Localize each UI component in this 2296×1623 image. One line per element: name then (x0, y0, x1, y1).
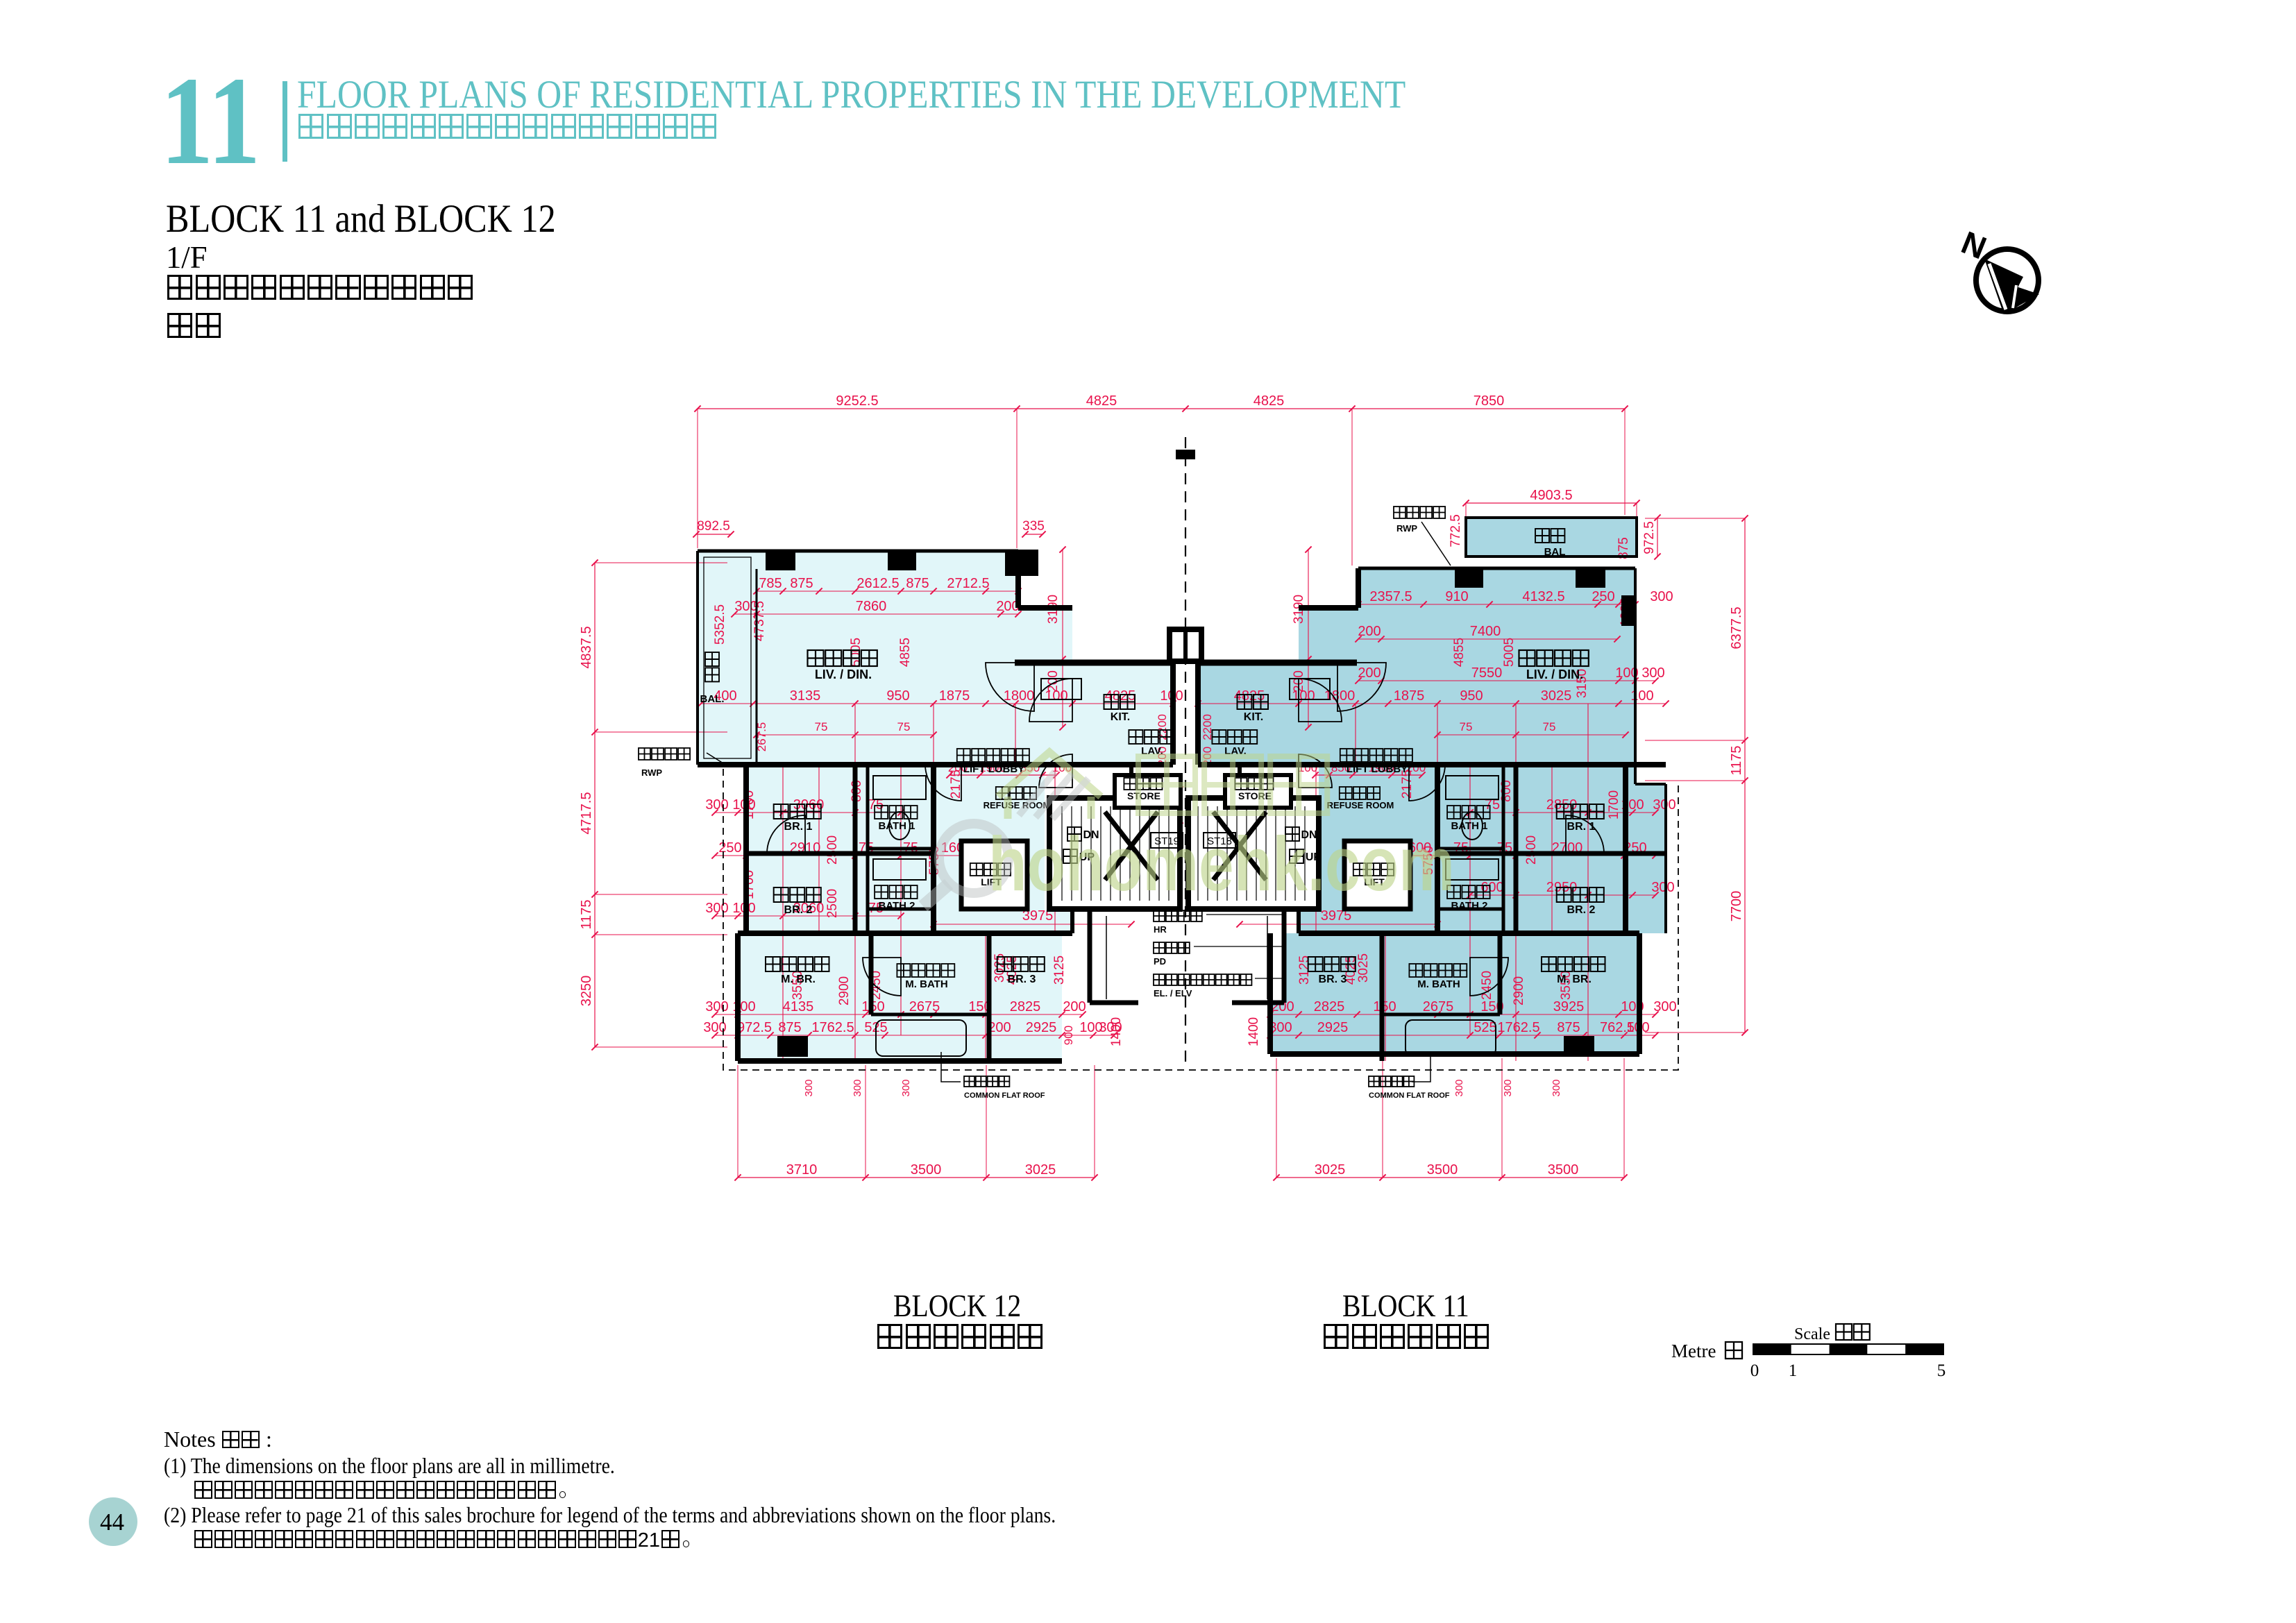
svg-text:300: 300 (1453, 1079, 1465, 1096)
svg-text:RWP: RWP (1396, 523, 1417, 534)
svg-text:7700: 7700 (1729, 891, 1744, 922)
svg-text:4717.5: 4717.5 (579, 792, 594, 834)
svg-text:5: 5 (1937, 1361, 1946, 1380)
svg-text:1875: 1875 (1394, 688, 1425, 704)
svg-text:3135: 3135 (790, 688, 821, 704)
svg-text:LIFT LOBBY: LIFT LOBBY (963, 763, 1024, 775)
svg-text:M. BATH: M. BATH (1417, 978, 1460, 990)
svg-text:LIV. / DIN.: LIV. / DIN. (815, 668, 872, 681)
svg-text:3025: 3025 (1315, 1162, 1346, 1178)
svg-text:BR. 3: BR. 3 (1008, 974, 1036, 985)
svg-text:BAL: BAL (1544, 546, 1566, 558)
svg-text:2825: 2825 (1010, 999, 1041, 1014)
svg-text:300: 300 (705, 999, 728, 1014)
svg-text:2900: 2900 (1512, 976, 1526, 1005)
svg-text:2925: 2925 (1026, 1020, 1057, 1035)
svg-text:950: 950 (1460, 688, 1483, 704)
svg-text:3925: 3925 (1553, 999, 1585, 1014)
svg-text:200: 200 (1063, 999, 1086, 1014)
svg-text:M. BATH: M. BATH (905, 978, 947, 990)
svg-text:STORE: STORE (1238, 790, 1272, 801)
svg-text:HR: HR (1154, 924, 1167, 935)
svg-text:4855: 4855 (898, 638, 913, 667)
svg-text:4903.5: 4903.5 (1530, 488, 1572, 503)
svg-text:BR. 2: BR. 2 (784, 904, 813, 916)
svg-text:Metre: Metre (1671, 1341, 1716, 1361)
svg-text:2900: 2900 (837, 976, 852, 1005)
svg-text:2675: 2675 (1423, 999, 1454, 1014)
svg-text:910: 910 (1445, 589, 1468, 604)
svg-text:BR. 2: BR. 2 (1567, 904, 1596, 916)
svg-text:892.5: 892.5 (697, 519, 730, 534)
svg-text:2357.5: 2357.5 (1369, 589, 1412, 604)
svg-text:875: 875 (906, 576, 929, 591)
svg-text:972.5: 972.5 (737, 1020, 772, 1035)
svg-text:Scale: Scale (1794, 1325, 1830, 1343)
svg-text:2500: 2500 (825, 835, 840, 865)
svg-text:6377.5: 6377.5 (1729, 606, 1744, 649)
svg-text:300: 300 (803, 1079, 815, 1096)
svg-text:LIFT LOBBY: LIFT LOBBY (1347, 763, 1408, 775)
svg-text:200: 200 (1358, 624, 1381, 639)
svg-text:1700: 1700 (1607, 790, 1621, 819)
svg-text:STORE: STORE (1127, 790, 1160, 801)
svg-text:BR. 1: BR. 1 (1567, 821, 1596, 833)
svg-text:2925: 2925 (1317, 1020, 1349, 1035)
svg-text:3500: 3500 (911, 1162, 942, 1178)
svg-text:2500: 2500 (825, 889, 840, 918)
svg-text:1762.5: 1762.5 (1497, 1020, 1539, 1035)
svg-text:BR. 3: BR. 3 (1319, 974, 1347, 985)
svg-text:2450: 2450 (1480, 971, 1494, 1000)
svg-text:1875: 1875 (939, 688, 970, 704)
svg-text:2712.5: 2712.5 (947, 576, 989, 591)
svg-text:BATH 1: BATH 1 (1451, 820, 1487, 832)
svg-text:250: 250 (718, 840, 741, 856)
svg-text:2675: 2675 (909, 999, 940, 1014)
svg-text:875: 875 (790, 576, 813, 591)
svg-text:300: 300 (1650, 589, 1673, 604)
svg-text:5005: 5005 (1502, 638, 1517, 667)
svg-text:4825: 4825 (1253, 393, 1285, 409)
svg-text:EL. / ELV: EL. / ELV (1154, 988, 1192, 999)
svg-text:200: 200 (1358, 665, 1381, 681)
svg-text:335: 335 (1022, 519, 1045, 534)
svg-text:300: 300 (1551, 1079, 1562, 1096)
svg-text:3025: 3025 (1025, 1162, 1056, 1178)
svg-text:875: 875 (1557, 1020, 1580, 1035)
svg-text:300: 300 (1651, 880, 1674, 895)
svg-text:2612.5: 2612.5 (856, 576, 899, 591)
svg-text:3500: 3500 (1427, 1162, 1458, 1178)
svg-text:3025: 3025 (1356, 953, 1371, 983)
svg-text:7850: 7850 (1474, 393, 1505, 409)
svg-text:COMMON FLAT ROOF: COMMON FLAT ROOF (964, 1091, 1045, 1100)
svg-text:RWP: RWP (641, 767, 662, 778)
svg-text:75: 75 (1460, 720, 1473, 733)
svg-text:875: 875 (778, 1020, 801, 1035)
svg-text:KIT.: KIT. (1244, 711, 1263, 723)
svg-text:800: 800 (1499, 780, 1514, 802)
svg-text:2500: 2500 (1524, 835, 1539, 865)
svg-text:950: 950 (886, 688, 909, 704)
svg-text:4837.5: 4837.5 (579, 626, 594, 668)
svg-text:1800: 1800 (1004, 688, 1035, 704)
svg-text:785: 785 (759, 576, 782, 591)
svg-text:3500: 3500 (1548, 1162, 1579, 1178)
svg-text:600: 600 (1480, 880, 1503, 895)
svg-text:KIT.: KIT. (1111, 711, 1130, 723)
svg-text:0: 0 (1750, 1361, 1759, 1380)
svg-text:2825: 2825 (1314, 999, 1345, 1014)
svg-text:9252.5: 9252.5 (836, 393, 878, 409)
svg-text:7860: 7860 (856, 599, 887, 614)
svg-text:1175: 1175 (1729, 745, 1744, 775)
svg-text:900: 900 (1062, 1026, 1075, 1045)
svg-text:300: 300 (705, 797, 728, 813)
svg-text:BR. 1: BR. 1 (784, 821, 813, 833)
svg-text:1175: 1175 (579, 899, 594, 929)
svg-text:300: 300 (900, 1079, 912, 1096)
svg-text:4825: 4825 (1086, 393, 1117, 409)
svg-text:972.5: 972.5 (1642, 521, 1657, 554)
svg-text:3710: 3710 (786, 1162, 818, 1178)
svg-text:772.5: 772.5 (1449, 514, 1463, 547)
svg-text:3250: 3250 (579, 976, 594, 1007)
svg-text:4135: 4135 (783, 999, 814, 1014)
svg-text:3125: 3125 (1297, 955, 1312, 985)
svg-text:1762.5: 1762.5 (811, 1020, 854, 1035)
svg-text:M. BR.: M. BR. (1557, 974, 1592, 985)
svg-text:3125: 3125 (1052, 955, 1067, 985)
svg-text:7550: 7550 (1471, 665, 1503, 681)
svg-text:300: 300 (1502, 1079, 1514, 1096)
svg-text:LIV. / DIN.: LIV. / DIN. (1526, 668, 1583, 681)
svg-text:COMMON FLAT ROOF: COMMON FLAT ROOF (1369, 1091, 1450, 1100)
svg-text:5352.5: 5352.5 (713, 604, 727, 645)
svg-text:BATH 2: BATH 2 (1451, 900, 1487, 912)
svg-text:hohomehk.com: hohomehk.com (988, 822, 1455, 907)
svg-text:BATH 2: BATH 2 (878, 900, 915, 912)
svg-text:75: 75 (815, 720, 828, 733)
svg-text:3025: 3025 (1541, 688, 1572, 704)
svg-text:BATH 1: BATH 1 (878, 820, 915, 832)
svg-text:BAL.: BAL. (700, 693, 725, 705)
svg-text:300: 300 (852, 1079, 863, 1096)
svg-text:300: 300 (1653, 999, 1676, 1014)
svg-text:4855: 4855 (1452, 638, 1467, 667)
svg-text:4132.5: 4132.5 (1522, 589, 1564, 604)
svg-text:150: 150 (1373, 999, 1396, 1014)
svg-text:PD: PD (1154, 956, 1166, 967)
svg-text:75: 75 (1543, 720, 1556, 733)
svg-text:7400: 7400 (1470, 624, 1501, 639)
svg-text:1: 1 (1789, 1361, 1798, 1380)
svg-text:300: 300 (705, 901, 728, 916)
svg-text:1400: 1400 (1247, 1017, 1261, 1046)
svg-text:300: 300 (734, 599, 757, 614)
svg-text:REFUSE ROOM: REFUSE ROOM (1327, 800, 1394, 810)
svg-text:M. BR.: M. BR. (781, 974, 816, 985)
svg-text:300: 300 (1641, 665, 1664, 681)
svg-text:1400: 1400 (1109, 1017, 1124, 1046)
svg-text:75: 75 (897, 720, 911, 733)
svg-text:250: 250 (1592, 589, 1614, 604)
